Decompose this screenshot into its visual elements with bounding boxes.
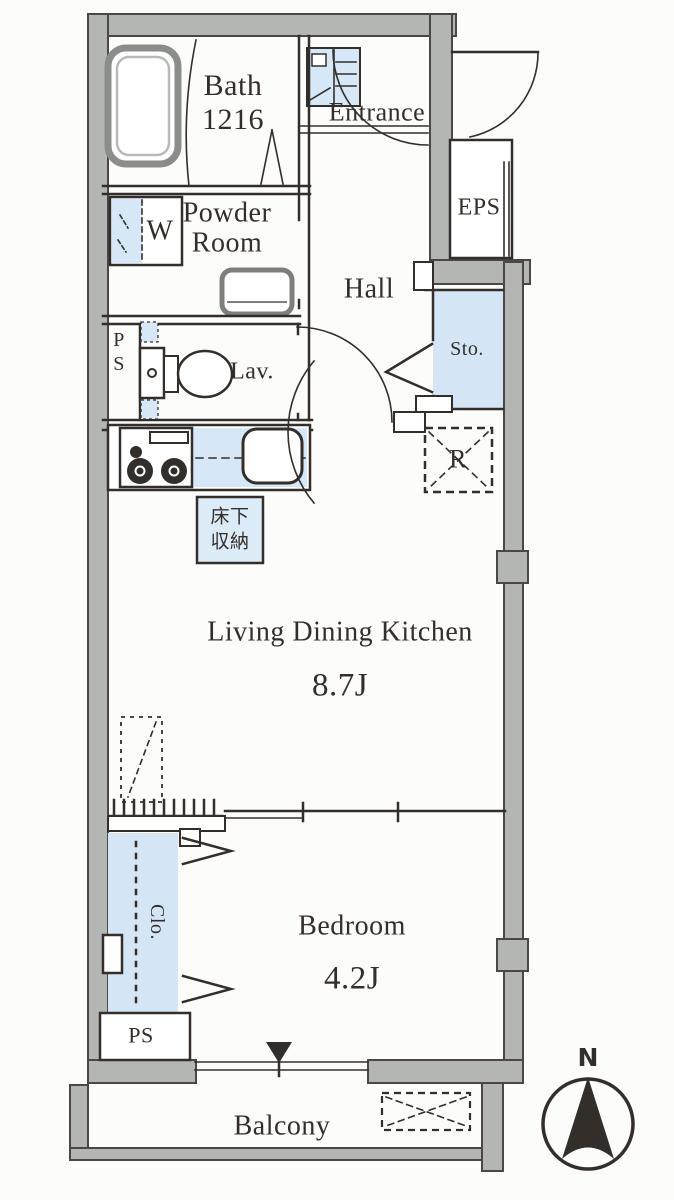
lavatory-label: Lav.	[230, 359, 274, 386]
ldk-door-stub-wall	[394, 412, 425, 432]
compass-needle-icon	[562, 1077, 614, 1159]
ps-lower-label: PS	[128, 1024, 153, 1049]
closet-label: Clo.	[146, 904, 168, 940]
floor-plan: Bath 1216 Entrance Powder Room EPS Hall …	[0, 0, 674, 1200]
entrance-step-line	[300, 126, 428, 133]
closet-door-chevron-bottom-icon	[183, 976, 231, 1002]
storage-label: Sto.	[450, 338, 484, 360]
bath-size-label: 1216	[202, 103, 264, 137]
refrigerator-label: R	[449, 444, 467, 473]
underfloor-label-1: 床下	[210, 506, 249, 527]
bath-partition-curve	[186, 40, 196, 186]
hall-label: Hall	[344, 273, 394, 304]
entrance-label: Entrance	[329, 97, 425, 126]
powder-room-walls	[103, 316, 300, 324]
bedroom-label: Bedroom	[298, 910, 406, 941]
entrance-door-icon	[452, 52, 538, 137]
ps-upper-label-p: P	[113, 329, 125, 351]
bath-label: Bath	[204, 69, 263, 103]
toilet-icon	[140, 322, 232, 419]
ldk-size-label: 8.7J	[312, 668, 368, 705]
bedroom-window-icon	[195, 1042, 368, 1076]
ps-upper-label-s: S	[113, 353, 125, 375]
eps-label: EPS	[458, 195, 501, 222]
bedroom-size-label: 4.2J	[324, 961, 380, 998]
powder-room-label-1: Powder	[183, 197, 272, 228]
ldk-dashed-outline	[121, 717, 162, 802]
balcony-label: Balcony	[234, 1110, 331, 1141]
compass-icon	[543, 1077, 633, 1169]
bath-walls	[103, 186, 310, 194]
wall-niche	[103, 935, 122, 973]
ac-unit-space-icon	[382, 1093, 470, 1130]
window-triangle-marker-icon	[266, 1042, 292, 1063]
storage-door-chevron-icon	[386, 344, 432, 392]
kitchen-sink-icon	[243, 429, 302, 483]
bath-door-icon	[261, 130, 283, 184]
vanity-sink-icon	[222, 270, 292, 314]
compass-north-label: N	[578, 1044, 599, 1072]
washer-label: W	[147, 215, 174, 246]
powder-room-label-2: Room	[192, 227, 262, 258]
underfloor-label-2: 収納	[210, 531, 249, 552]
ldk-label: Living Dining Kitchen	[207, 616, 473, 647]
kitchen-stove-icon	[120, 428, 192, 487]
bathtub-icon	[108, 48, 178, 164]
lavatory-door-icon	[297, 327, 392, 422]
floor-plan-drawing	[0, 0, 674, 1200]
kitchen-counter	[108, 425, 310, 490]
accordion-hatch-icon	[114, 800, 214, 816]
